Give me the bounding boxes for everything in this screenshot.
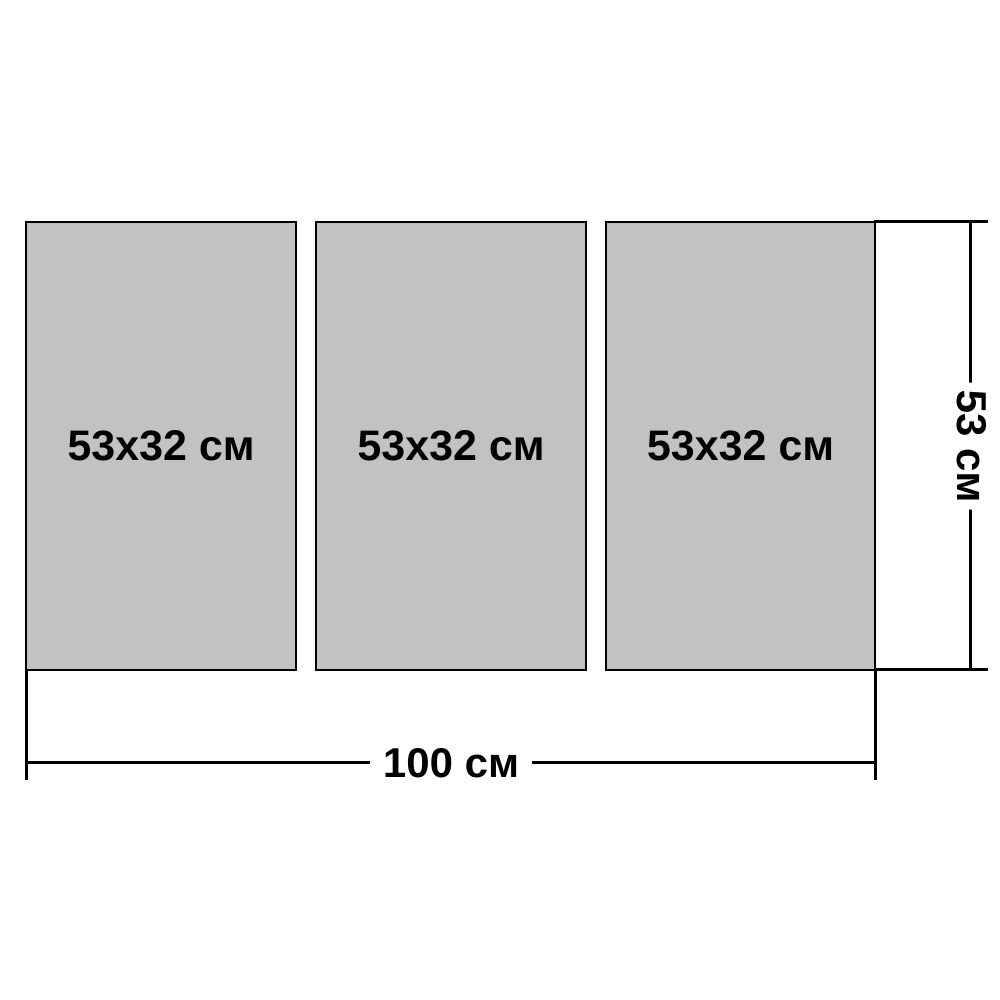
panel-1: 53x32 см [25, 221, 297, 671]
panel-3-size-label: 53x32 см [647, 422, 834, 471]
panel-2: 53x32 см [315, 221, 587, 671]
height-dimension-label: 53 см [950, 383, 992, 510]
panel-1-size-label: 53x32 см [67, 422, 254, 471]
panel-2-size-label: 53x32 см [357, 422, 544, 471]
size-diagram: 53x32 см 53x32 см 53x32 см 53 см 100 см [0, 0, 1000, 1000]
panel-3: 53x32 см [605, 221, 876, 671]
width-dimension-label: 100 см [370, 742, 532, 784]
